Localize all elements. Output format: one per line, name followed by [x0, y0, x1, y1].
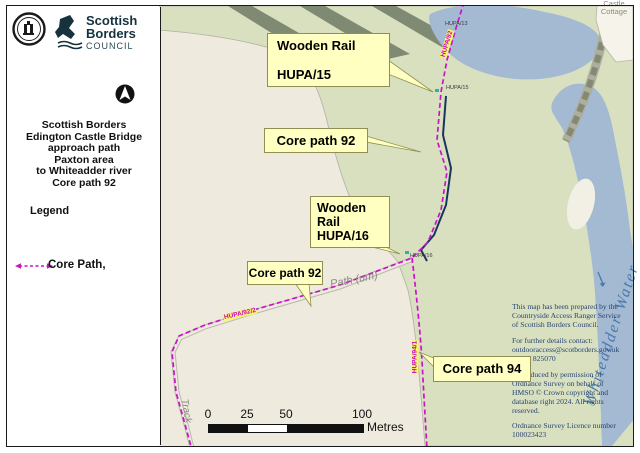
legend-heading: Legend	[30, 205, 69, 217]
burgh-seal-logo	[14, 14, 45, 45]
map-title-line: to Whiteadder river	[12, 166, 156, 178]
council-logo-glyph	[55, 15, 75, 39]
legend-core-path-label: Core Path,	[48, 259, 106, 271]
council-logo-waves	[58, 42, 82, 49]
callout-line: HUPA/16	[317, 229, 389, 243]
note-prepared: This map has been prepared by the Countr…	[512, 303, 626, 330]
north-arrow-icon	[116, 85, 135, 104]
left-panel-logos: Scottish Borders COUNCIL	[8, 7, 160, 117]
asset-marker-hupa16	[405, 251, 409, 254]
small-label-hupa13: HUPA/13	[445, 21, 468, 27]
scale-bar	[208, 424, 364, 433]
council-logo-council: COUNCIL	[86, 41, 134, 51]
council-logo: Scottish Borders COUNCIL	[55, 13, 137, 51]
small-label-hupa16: HUPA/16	[410, 253, 433, 259]
left-panel: Scottish Borders COUNCIL Scottish Border…	[8, 7, 161, 445]
callout-core-path-92-lower: Core path 92	[247, 261, 323, 285]
note-contact-intro: For further details contact:	[512, 336, 593, 345]
callout-wooden-rail-hupa15: Wooden Rail HUPA/15	[267, 33, 390, 87]
callout-line: HUPA/15	[277, 67, 389, 82]
callout-line: Wooden Rail	[277, 38, 389, 53]
scale-tick-50: 50	[279, 407, 292, 421]
asset-marker-hupa15	[435, 89, 439, 92]
map-document-page: Wooden Rail HUPA/15 Core path 92 Wooden …	[0, 0, 640, 453]
scale-seg-2	[248, 425, 287, 432]
scale-unit-label: Metres	[367, 420, 404, 434]
callout-core-path-94: Core path 94	[433, 356, 531, 382]
scale-seg-1	[209, 425, 248, 432]
path-tag-hupa94-1: HUPA/94/1	[412, 340, 419, 374]
castle-cottage-label: Castle Cottage	[592, 0, 636, 16]
callout-line: Wooden Rail	[317, 201, 389, 229]
map-title-line: approach path	[12, 143, 156, 155]
callout-wooden-rail-hupa16: Wooden Rail HUPA/16	[310, 196, 390, 248]
map-title-line: Scottish Borders	[12, 120, 156, 132]
map-title-line: Core path 92	[12, 178, 156, 190]
scale-tick-100: 100	[352, 407, 372, 421]
note-os-licence: Ordnance Survey Licence number 100023423	[512, 422, 626, 440]
note-contact-email: outdooraccess@scotborders.gov.uk	[512, 345, 619, 354]
scale-tick-0: 0	[205, 407, 212, 421]
council-logo-line2: Borders	[86, 26, 136, 41]
small-label-hupa15: HUPA/15	[446, 85, 469, 91]
scale-seg-3	[287, 425, 363, 432]
callout-core-path-92-upper: Core path 92	[264, 128, 368, 153]
scale-tick-25: 25	[240, 407, 253, 421]
castle-cottage-line2: Cottage	[592, 8, 636, 16]
map-title: Scottish Borders Edington Castle Bridge …	[12, 120, 156, 189]
